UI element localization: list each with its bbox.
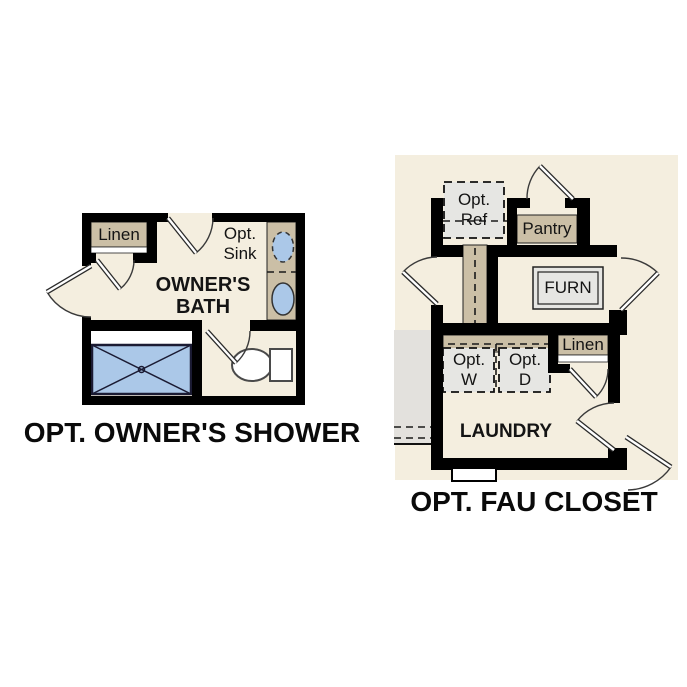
floor-plan-canvas: Linen Opt. Sink OWNER'S BATH OPT. OWNER'… (0, 0, 687, 687)
sink-basin (272, 283, 294, 315)
shower-curb (91, 331, 192, 345)
pantry-label: Pantry (522, 219, 571, 239)
shower (92, 345, 191, 394)
linen-label: Linen (98, 225, 140, 245)
opt-w-label: Opt. W (453, 350, 485, 390)
toilet-tank (270, 349, 292, 381)
adjacent-area (394, 330, 431, 444)
opt-sink-label: Opt. Sink (223, 224, 256, 264)
laundry-label: LAUNDRY (460, 421, 552, 443)
owners-bath-label: OWNER'S BATH (156, 274, 251, 318)
optional-sink-basin (273, 232, 294, 262)
toilet (232, 349, 292, 381)
entry-door-swing-area (47, 266, 91, 317)
owners-shower-title: OPT. OWNER'S SHOWER (24, 417, 360, 449)
linen-shelf-laundry (558, 355, 608, 362)
furn-label: FURN (544, 278, 591, 298)
linen-laundry-label: Linen (562, 335, 604, 355)
toilet-bowl (232, 349, 272, 381)
opt-ref-label: Opt. Ref (458, 190, 490, 230)
opt-d-label: Opt. D (509, 350, 541, 390)
threshold (452, 468, 496, 481)
linen-shelf (91, 247, 147, 253)
fau-closet-title: OPT. FAU CLOSET (410, 486, 657, 518)
